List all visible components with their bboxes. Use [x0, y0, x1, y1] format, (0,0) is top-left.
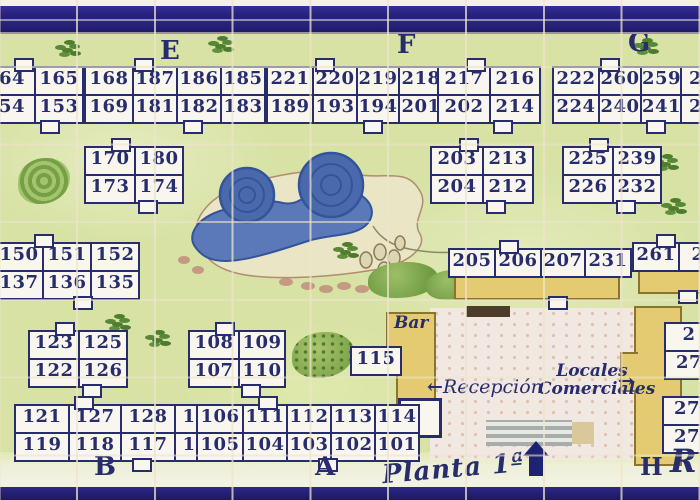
apartment-row: 202214: [437, 96, 539, 124]
apartment-block: 106111112113114105104103102101: [196, 406, 418, 462]
apartment-row: 105104103102101: [196, 434, 418, 462]
apartment-row: 217216: [437, 68, 539, 96]
apartment-number-cell: 173: [84, 174, 136, 204]
apartment-row: 27: [662, 396, 700, 426]
building-footprint-tab: [55, 322, 75, 336]
apartment-row: 22226025925: [552, 68, 700, 96]
apartment-row: 137136135: [0, 272, 138, 300]
building-footprint-tab: [138, 200, 158, 214]
apartment-number-cell: 181: [132, 94, 178, 124]
apartment-number-cell: 183: [220, 94, 266, 124]
apartment-number-cell: 125: [78, 330, 128, 360]
apartment-number-cell: 186: [176, 66, 222, 96]
apartment-block: 6416554153: [0, 68, 82, 124]
building-footprint-tab: [493, 120, 513, 134]
apartment-row: 122126: [28, 360, 126, 388]
grass-tuft: [112, 322, 123, 327]
apartment-row: 169181182183: [84, 96, 264, 124]
apartment-number-cell: 207: [540, 248, 586, 278]
apartment-block: 225239226232: [562, 148, 660, 204]
building-footprint-tab: [215, 322, 235, 336]
building-footprint-tab: [183, 120, 203, 134]
apartment-number-cell: 119: [14, 432, 70, 462]
apartment-block: 170180173174: [84, 148, 182, 204]
apartment-row: 225239: [562, 148, 660, 176]
apartment-number-cell: 27: [664, 350, 700, 380]
building-footprint-tab: [258, 396, 278, 410]
apartment-number-cell: 189: [266, 94, 314, 124]
apartment-number-cell: 109: [238, 330, 286, 360]
apartment-number-cell: 213: [482, 146, 534, 176]
reception-arrow-icon: ←: [427, 376, 443, 398]
apartment-block: 227: [664, 322, 700, 380]
apartment-number-cell: 107: [188, 358, 240, 388]
apartment-row: 22424024124: [552, 96, 700, 124]
apartment-row: 226232: [562, 176, 660, 204]
apartment-row: 2: [664, 322, 700, 352]
building-footprint-tab: [40, 120, 60, 134]
apartment-number-cell: 128: [120, 404, 176, 434]
apartment-number-cell: 135: [90, 270, 140, 300]
apartment-number-cell: 259: [640, 66, 682, 96]
apartment-number-cell: 226: [562, 174, 614, 204]
apartment-block: 203213204212: [430, 148, 532, 204]
apartment-number-cell: 204: [430, 174, 484, 204]
section-label-g: G: [628, 28, 650, 58]
apartment-number-cell: 27: [662, 396, 700, 426]
apartment-number-cell: 112: [286, 404, 332, 434]
section-label-a: A: [315, 452, 335, 482]
apartment-number-cell: 137: [0, 270, 44, 300]
apartment-row: 168187186185: [84, 68, 264, 96]
apartment-block: 2222602592522424024124: [552, 68, 700, 124]
apartment-row: 170180: [84, 148, 182, 176]
building-footprint-tab: [132, 458, 152, 472]
apartment-number-cell: 54: [0, 94, 36, 124]
building-footprint-tab: [74, 396, 94, 410]
apartment-row: 108109: [188, 332, 284, 360]
apartment-block: 221220219218189193194201: [266, 68, 442, 124]
apartment-row: 204212: [430, 176, 532, 204]
apartment-number-cell: 105: [196, 432, 244, 462]
apartment-number-cell: 2: [664, 322, 700, 352]
apartment-block: 205206207231: [448, 250, 630, 300]
building-footprint-tab: [111, 138, 131, 152]
building-footprint-tab: [134, 58, 154, 72]
building-footprint-tab: [589, 138, 609, 152]
apartment-number-cell: 165: [34, 66, 84, 96]
grass-tuft: [215, 44, 226, 49]
apartment-number-cell: 224: [552, 94, 600, 124]
building-footprint-tab: [315, 58, 335, 72]
apartment-row: 173174: [84, 176, 182, 204]
apartment-row: 106111112113114: [196, 406, 418, 434]
apartment-number-cell: 239: [612, 146, 662, 176]
grass-tuft: [668, 206, 679, 211]
entrance-mat: [572, 422, 594, 444]
section-label-h: H: [640, 452, 663, 481]
building-shadow: [466, 306, 510, 317]
apartment-block: 168187186185169181182183: [84, 68, 264, 124]
apartment-row: 123125: [28, 332, 126, 360]
apartment-number-cell: 169: [84, 94, 134, 124]
grass-tuft: [62, 48, 73, 53]
section-label-f: F: [397, 30, 415, 60]
building-footprint-tab: [486, 200, 506, 214]
apartment-row: 221220219218: [266, 68, 442, 96]
apartment-number-cell: 2: [678, 242, 700, 272]
building-footprint-tab: [656, 234, 676, 248]
section-label-b: B: [94, 452, 116, 482]
building-footprint-tab: [459, 138, 479, 152]
apartment-number-cell: 106: [196, 404, 244, 434]
commercial-band: [454, 276, 620, 300]
building-footprint-tab: [499, 240, 519, 254]
apartment-number-cell: 25: [680, 66, 700, 96]
grass-tuft: [152, 338, 163, 343]
apartment-number-cell: 114: [374, 404, 420, 434]
building-footprint-tab: [363, 120, 383, 134]
apartment-number-cell: 152: [90, 242, 140, 272]
section-label-e: E: [160, 36, 180, 66]
apartment-row: 27: [664, 352, 700, 380]
apartment-number-cell: 168: [84, 66, 134, 96]
apartment-number-cell: 216: [489, 66, 541, 96]
apartment-number-cell: 219: [356, 66, 400, 96]
apartment-row: 189193194201: [266, 96, 442, 124]
spa-circle-right: [299, 153, 363, 217]
apartment-number-cell: 113: [330, 404, 376, 434]
building-footprint-tab: [678, 290, 698, 304]
apartment-row: 203213: [430, 148, 532, 176]
apartment-row: 2612: [632, 244, 700, 272]
building-footprint-tab: [548, 296, 568, 310]
apartment-block: 150151152137136135: [0, 244, 138, 300]
spa-circle-left: [220, 168, 274, 222]
building-footprint-tab: [466, 58, 486, 72]
building-footprint-tab: [73, 296, 93, 310]
reception-label: ←Recepción: [427, 376, 543, 398]
apartment-number-cell: 185: [220, 66, 266, 96]
up-arrow-icon: [523, 441, 549, 477]
apartment-number-cell: 202: [437, 94, 491, 124]
apartment-row: 150151152: [0, 244, 138, 272]
right-arrow-icon: →: [618, 370, 634, 392]
tiled-resort-map-mural: 6416554153168187186185169181182183221220…: [0, 0, 700, 500]
apartment-number-cell: 205: [448, 248, 496, 278]
building-footprint-tab: [600, 58, 620, 72]
apartment-row: 64165: [0, 68, 82, 96]
bottom-border-band: [0, 487, 700, 500]
building-footprint-tab: [616, 200, 636, 214]
apartment-block: 123125122126: [28, 332, 126, 388]
top-border-band: [0, 6, 700, 34]
building-footprint-tab: [14, 58, 34, 72]
apartment-number-cell: 115: [350, 346, 402, 376]
apartment-block: 115: [350, 346, 400, 376]
grass-tuft: [340, 250, 351, 255]
apartment-number-cell: 104: [242, 432, 288, 462]
apartment-number-cell: 122: [28, 358, 80, 388]
apartment-number-cell: 222: [552, 66, 600, 96]
apartment-block: 108109107110: [188, 332, 284, 388]
apartment-block: 2612: [632, 244, 700, 294]
apartment-row: 115: [350, 346, 400, 376]
apartment-number-cell: 193: [312, 94, 358, 124]
apartment-number-cell: 221: [266, 66, 314, 96]
apartment-number-cell: 240: [598, 94, 642, 124]
apartment-number-cell: 231: [584, 248, 632, 278]
apartment-row: 205206207231: [448, 250, 630, 278]
apartment-number-cell: 121: [14, 404, 70, 434]
bar-label: Bar: [394, 313, 428, 333]
apartment-row: 107110: [188, 360, 284, 388]
building-footprint-tab: [646, 120, 666, 134]
apartment-number-cell: 24: [680, 94, 700, 124]
section-label-r: R: [670, 442, 697, 480]
building-footprint-tab: [34, 234, 54, 248]
apartment-block: 217216202214: [437, 68, 539, 124]
apartment-number-cell: 180: [134, 146, 184, 176]
